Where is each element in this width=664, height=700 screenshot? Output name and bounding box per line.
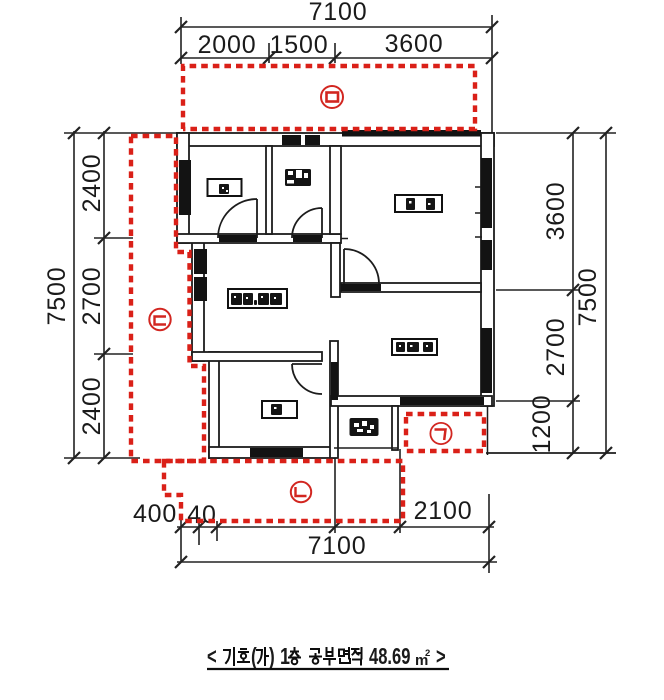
svg-text:2700: 2700: [78, 267, 106, 326]
svg-text:2400: 2400: [78, 377, 106, 436]
svg-text:7100: 7100: [308, 532, 367, 560]
svg-text:7500: 7500: [43, 267, 71, 326]
svg-text:40: 40: [187, 501, 216, 529]
svg-text:7100: 7100: [309, 0, 368, 26]
svg-text:3600: 3600: [385, 30, 444, 58]
svg-text:1200: 1200: [528, 395, 556, 454]
svg-text:2700: 2700: [542, 318, 570, 377]
svg-text:7500: 7500: [574, 268, 602, 327]
svg-text:2: 2: [425, 648, 430, 659]
svg-text:48.69: 48.69: [369, 644, 410, 669]
svg-text:2400: 2400: [78, 154, 106, 213]
svg-text:3600: 3600: [542, 182, 570, 241]
svg-text:(: (: [251, 645, 257, 670]
svg-text:<: <: [207, 644, 217, 669]
svg-text:2100: 2100: [414, 497, 473, 525]
svg-text:): ): [269, 645, 275, 670]
svg-text:400: 400: [133, 500, 177, 528]
svg-text:>: >: [436, 644, 446, 669]
svg-text:1500: 1500: [270, 31, 329, 59]
svg-text:2000: 2000: [198, 31, 257, 59]
